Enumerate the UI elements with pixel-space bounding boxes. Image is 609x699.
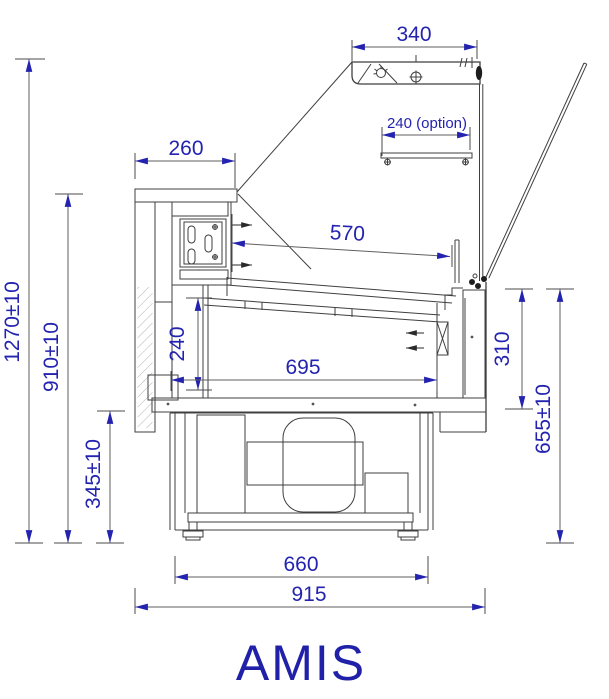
canopy [352,55,482,84]
amis-cross-section-drawing: 340 240 (option) 260 570 240 695 310 [0,0,609,699]
glass-plane-line [237,62,352,192]
well-bottom [152,398,486,412]
dimension-240-option: 240 (option) [382,115,470,156]
electrical-box [365,473,408,513]
dimension-910: 910±10 [40,194,83,543]
front-wall [440,282,486,432]
dim-canopy-width: 340 [396,23,431,46]
dimension-260: 260 [135,137,235,188]
inner-glass-line [238,194,311,269]
dimension-655: 655±10 [532,289,574,543]
airflow-arrows [232,225,424,348]
lamp-icon [374,66,388,78]
drawing-title: AMIS [236,635,366,691]
dim-base-frame-width: 660 [283,553,318,576]
dim-shelf-option: 240 (option) [387,115,467,132]
compressor [283,418,355,512]
technical-drawing-page: 340 240 (option) 260 570 240 695 310 [0,0,609,699]
dim-deck-length: 570 [329,221,365,246]
glass-support-post [455,240,459,283]
dim-well-inner-length: 695 [285,356,320,379]
canopy-pivot-icon [476,66,482,80]
dim-well-inner-height: 240 [166,326,189,361]
screw-icon [410,71,423,84]
dim-front-wall-height: 310 [491,331,514,366]
shelf-screw-icon [384,159,391,166]
fan-unit [172,202,231,285]
dim-overall-height: 1270±10 [1,281,24,363]
dimension-695: 695 [171,356,437,391]
air-duct [437,303,448,398]
dimension-570: 570 [232,214,452,272]
dim-base-clearance-height: 345±10 [82,439,105,509]
condensing-unit [197,415,245,513]
base-tray [188,513,413,522]
front-step [445,288,463,310]
dimension-660: 660 [175,553,428,584]
dim-front-total-height: 655±10 [532,384,555,454]
display-deck [204,277,456,322]
machine-compartment [170,413,433,530]
well-left-wall [203,285,208,398]
dim-overall-depth: 915 [291,583,326,606]
counter-top [135,189,237,202]
foot-left [183,522,203,540]
dim-rear-counter-width: 260 [168,137,203,160]
dimension-345: 345±10 [82,411,125,543]
fan-screw-icon [199,224,218,270]
shelf-screw-icon [462,159,469,166]
foot-right [398,522,418,540]
dimension-340: 340 [352,23,477,61]
rear-glass [480,84,483,281]
dimension-310: 310 [491,289,533,409]
condenser [247,442,363,485]
option-shelf [381,153,472,166]
dimension-1270: 1270±10 [1,59,45,543]
dim-counter-top-height: 910±10 [40,322,63,392]
dimension-915: 915 [135,583,485,614]
hinge-icon [469,274,487,289]
front-glass-raised [486,63,587,278]
dimension-240-well: 240 [166,298,212,390]
